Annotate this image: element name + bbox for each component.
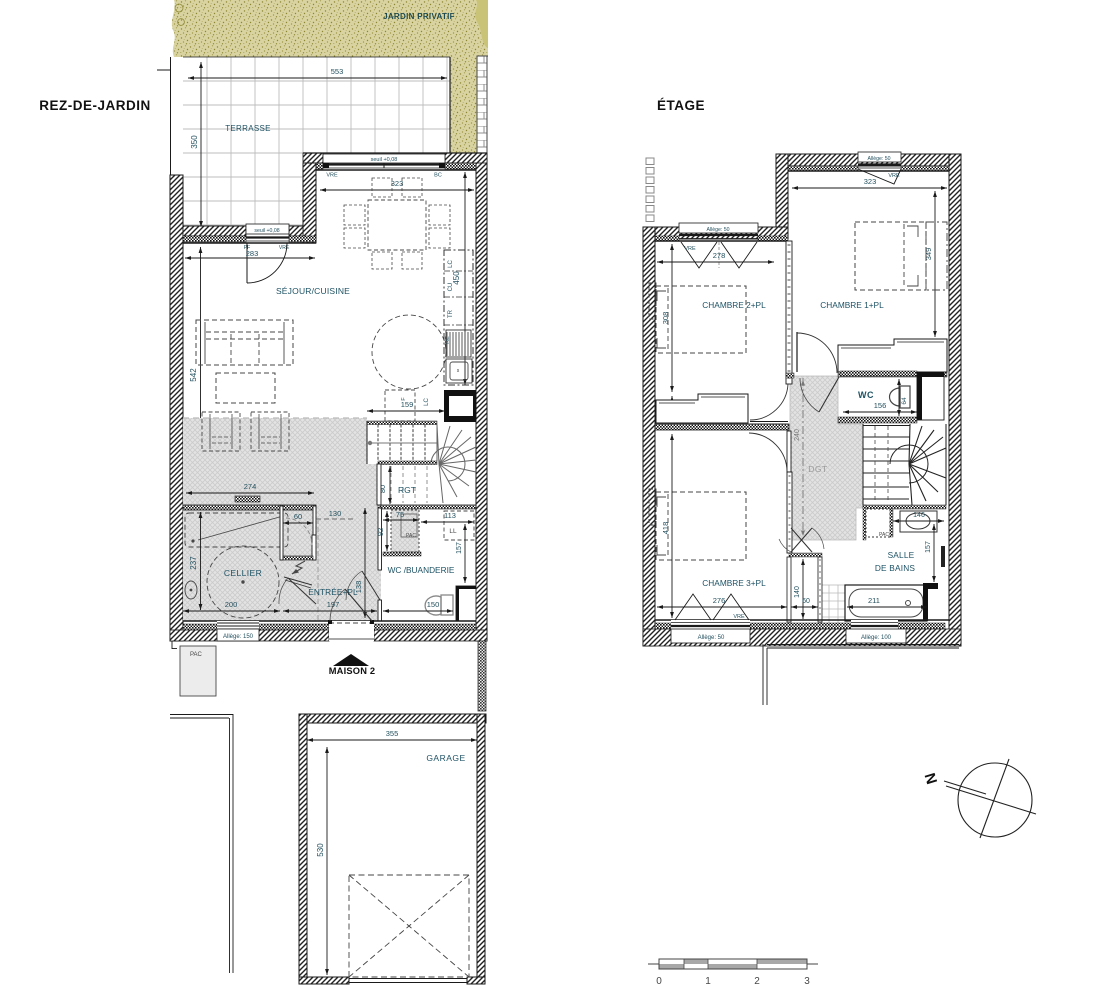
- svg-text:PAC: PAC: [406, 533, 416, 539]
- svg-text:VRE: VRE: [279, 245, 290, 251]
- svg-text:138: 138: [354, 581, 363, 594]
- svg-text:CHAMBRE 1+PL: CHAMBRE 1+PL: [820, 300, 884, 310]
- svg-text:Allège: 50: Allège: 50: [706, 227, 729, 233]
- svg-text:s: s: [457, 368, 460, 374]
- svg-text:VRE: VRE: [733, 614, 745, 620]
- svg-text:349: 349: [924, 248, 933, 261]
- svg-text:3: 3: [804, 976, 810, 987]
- svg-text:TERRASSE: TERRASSE: [225, 124, 271, 133]
- svg-text:211: 211: [868, 596, 880, 605]
- svg-text:CHAMBRE 3+PL: CHAMBRE 3+PL: [702, 578, 766, 588]
- svg-text:ÉTAGE: ÉTAGE: [657, 98, 705, 113]
- svg-text:75: 75: [396, 510, 404, 519]
- svg-text:MAISON 2: MAISON 2: [329, 666, 376, 676]
- svg-text:JARDIN PRIVATIF: JARDIN PRIVATIF: [383, 12, 455, 21]
- svg-text:Allège: 100: Allège: 100: [861, 635, 892, 641]
- svg-text:274: 274: [244, 482, 257, 491]
- svg-text:308: 308: [661, 312, 670, 325]
- svg-text:VRE: VRE: [684, 246, 696, 252]
- svg-text:113: 113: [444, 511, 456, 520]
- svg-text:92: 92: [376, 528, 385, 536]
- svg-text:237: 237: [189, 556, 198, 570]
- svg-text:VRE: VRE: [326, 173, 338, 179]
- svg-text:N: N: [921, 771, 940, 786]
- svg-text:Allège: 50: Allège: 50: [867, 156, 890, 162]
- svg-text:283: 283: [246, 249, 259, 258]
- svg-text:GARAGE: GARAGE: [426, 753, 465, 763]
- svg-text:LL: LL: [449, 528, 457, 535]
- svg-text:530: 530: [316, 843, 325, 857]
- svg-text:60: 60: [294, 512, 302, 521]
- svg-text:276: 276: [713, 596, 726, 605]
- svg-text:157: 157: [456, 542, 463, 554]
- svg-text:PAC: PAC: [190, 652, 203, 658]
- svg-text:RE: RE: [445, 336, 451, 344]
- svg-text:157: 157: [925, 541, 932, 553]
- svg-text:2: 2: [754, 976, 760, 987]
- svg-text:240: 240: [794, 429, 801, 441]
- svg-text:RGT: RGT: [398, 485, 416, 495]
- svg-text:140: 140: [794, 586, 801, 598]
- svg-text:DGT: DGT: [808, 464, 827, 474]
- svg-text:LC: LC: [424, 397, 430, 405]
- svg-text:WC: WC: [858, 390, 874, 400]
- svg-text:CU: CU: [448, 283, 454, 292]
- svg-text:1: 1: [705, 976, 711, 987]
- svg-text:450: 450: [452, 271, 461, 285]
- svg-text:Allège: 50: Allège: 50: [698, 635, 725, 641]
- svg-text:150: 150: [427, 600, 440, 609]
- svg-text:278: 278: [713, 251, 726, 260]
- svg-text:TR: TR: [448, 309, 454, 318]
- svg-text:130: 130: [329, 509, 342, 518]
- svg-text:159: 159: [401, 400, 414, 409]
- svg-text:VRE: VRE: [888, 173, 900, 179]
- svg-text:156: 156: [874, 401, 887, 410]
- svg-text:323: 323: [391, 179, 404, 188]
- svg-text:CHAMBRE 2+PL: CHAMBRE 2+PL: [702, 300, 766, 310]
- svg-text:350: 350: [190, 135, 199, 149]
- svg-text:DE BAINS: DE BAINS: [875, 563, 916, 573]
- svg-text:542: 542: [189, 368, 198, 382]
- svg-text:LC: LC: [448, 259, 454, 267]
- svg-text:CELLIER: CELLIER: [224, 568, 262, 578]
- svg-text:REZ-DE-JARDIN: REZ-DE-JARDIN: [39, 98, 151, 113]
- svg-text:Allège: 150: Allège: 150: [223, 634, 254, 640]
- svg-text:60: 60: [802, 598, 810, 605]
- svg-text:323: 323: [864, 177, 877, 186]
- svg-text:200: 200: [225, 600, 238, 609]
- svg-text:seuil +0,08: seuil +0,08: [254, 228, 279, 234]
- svg-text:418: 418: [661, 522, 670, 535]
- svg-text:146: 146: [913, 512, 925, 519]
- svg-text:553: 553: [331, 67, 344, 76]
- svg-text:BC: BC: [434, 173, 442, 179]
- svg-text:SALLE: SALLE: [888, 550, 915, 560]
- svg-text:seuil +0,08: seuil +0,08: [371, 157, 398, 163]
- svg-text:WC /BUANDERIE: WC /BUANDERIE: [388, 565, 455, 575]
- svg-text:0: 0: [656, 976, 662, 987]
- svg-text:355: 355: [386, 729, 399, 738]
- svg-text:64: 64: [901, 397, 908, 405]
- svg-text:PAC: PAC: [879, 532, 889, 538]
- svg-text:SÉJOUR/CUISINE: SÉJOUR/CUISINE: [276, 286, 350, 296]
